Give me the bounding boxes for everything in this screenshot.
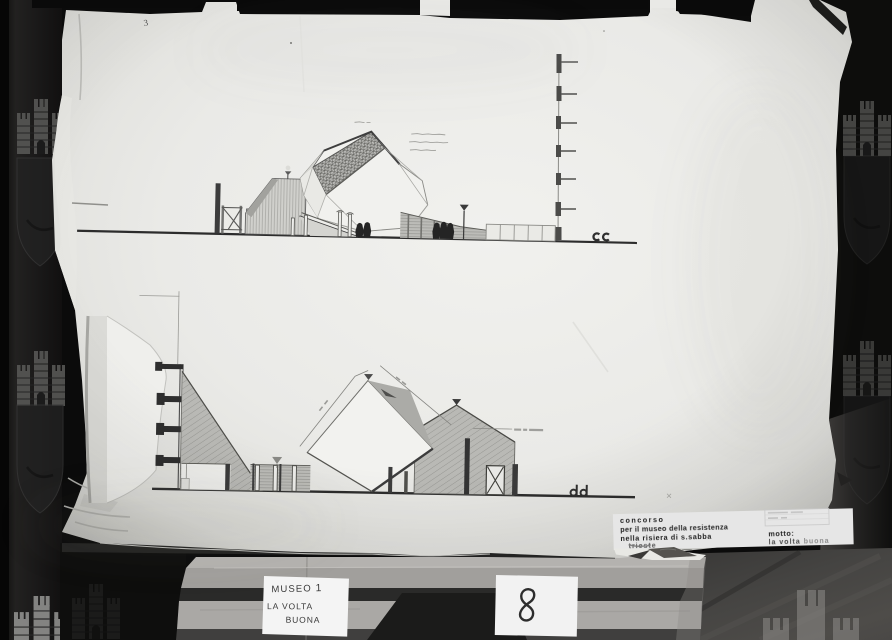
svg-text:MUSEO 1: MUSEO 1: [271, 582, 322, 595]
svg-text:LA VOLTA: LA VOLTA: [267, 601, 313, 611]
svg-text:motto:: motto:: [768, 529, 794, 539]
svg-text:BUONA: BUONA: [286, 615, 321, 625]
svg-text:la volta buona: la volta buona: [769, 538, 830, 546]
